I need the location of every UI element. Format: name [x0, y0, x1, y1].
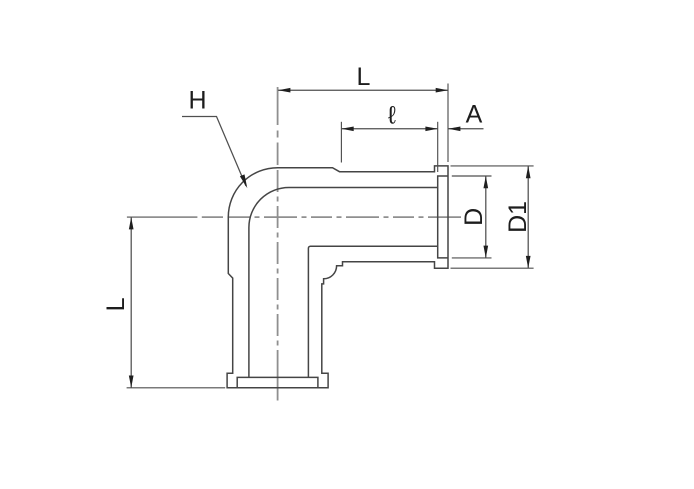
svg-text:A: A: [466, 101, 483, 129]
svg-text:D: D: [460, 208, 488, 226]
svg-text:L: L: [357, 63, 371, 91]
svg-text:D1: D1: [504, 201, 532, 233]
svg-text:L: L: [102, 297, 130, 311]
svg-text:H: H: [188, 87, 206, 115]
svg-text:ℓ: ℓ: [388, 102, 397, 130]
